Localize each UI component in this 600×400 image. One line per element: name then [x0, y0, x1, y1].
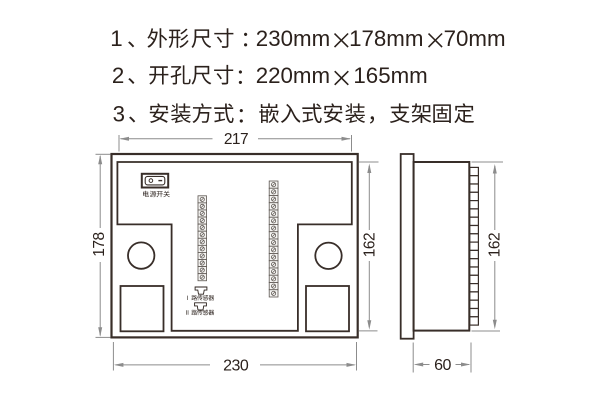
- svg-text:178: 178: [91, 232, 108, 256]
- svg-text:178mm: 178mm: [349, 26, 423, 51]
- svg-text:1: 1: [110, 26, 122, 51]
- svg-text:2: 2: [112, 63, 124, 88]
- svg-text:162: 162: [361, 233, 378, 257]
- svg-text:70mm: 70mm: [444, 26, 506, 51]
- svg-text:230mm: 230mm: [256, 26, 330, 51]
- svg-text:60: 60: [434, 357, 451, 374]
- svg-text:217: 217: [224, 131, 248, 148]
- svg-text:230: 230: [223, 358, 249, 375]
- svg-text:3: 3: [113, 101, 125, 126]
- svg-text:162: 162: [487, 233, 504, 257]
- svg-text:220mm: 220mm: [256, 63, 330, 88]
- svg-text:165mm: 165mm: [353, 63, 427, 88]
